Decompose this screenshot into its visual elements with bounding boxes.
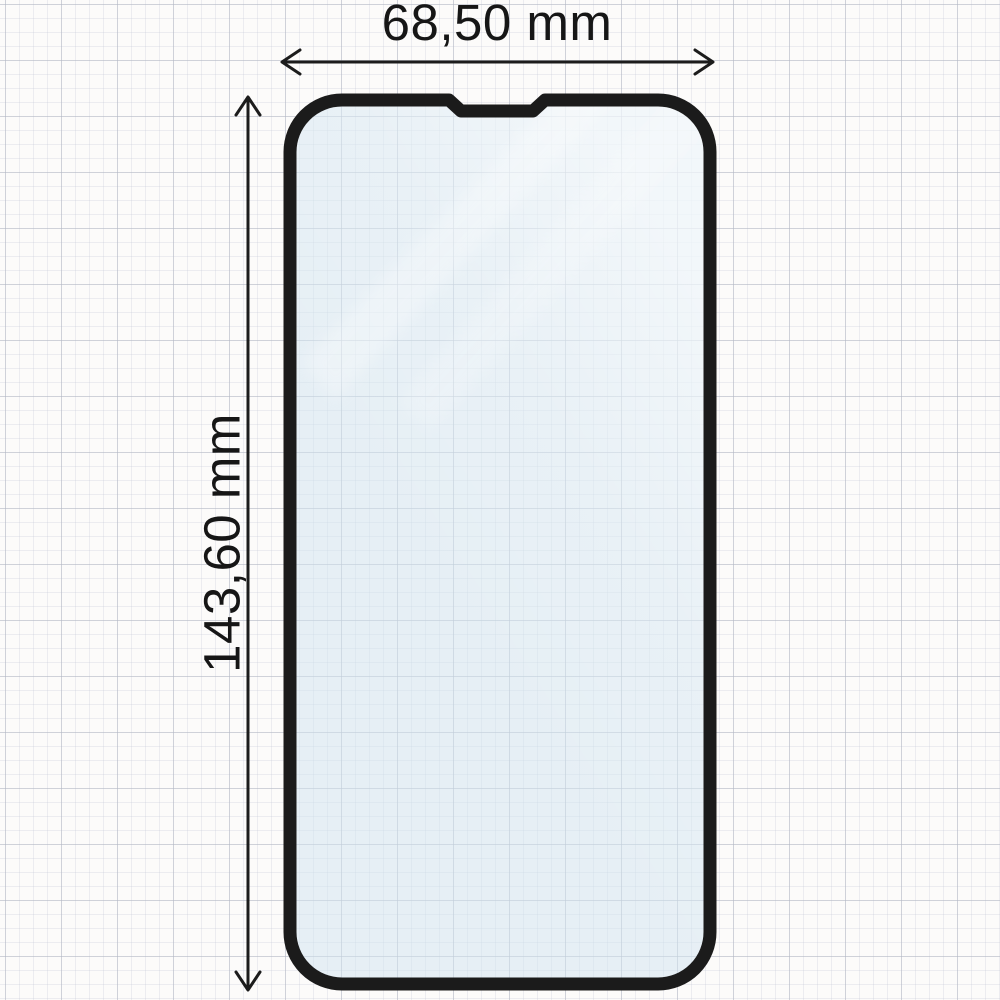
width-dimension-arrow [282, 50, 713, 74]
diagram-canvas: 68,50 mm 143,60 mm [0, 0, 1000, 1000]
height-dimension-label: 143,60 mm [197, 413, 248, 673]
screen-protector [290, 95, 710, 984]
dimension-drawing [0, 0, 1000, 1000]
width-dimension-label: 68,50 mm [382, 0, 613, 48]
glass-glare-gradient [290, 100, 710, 984]
